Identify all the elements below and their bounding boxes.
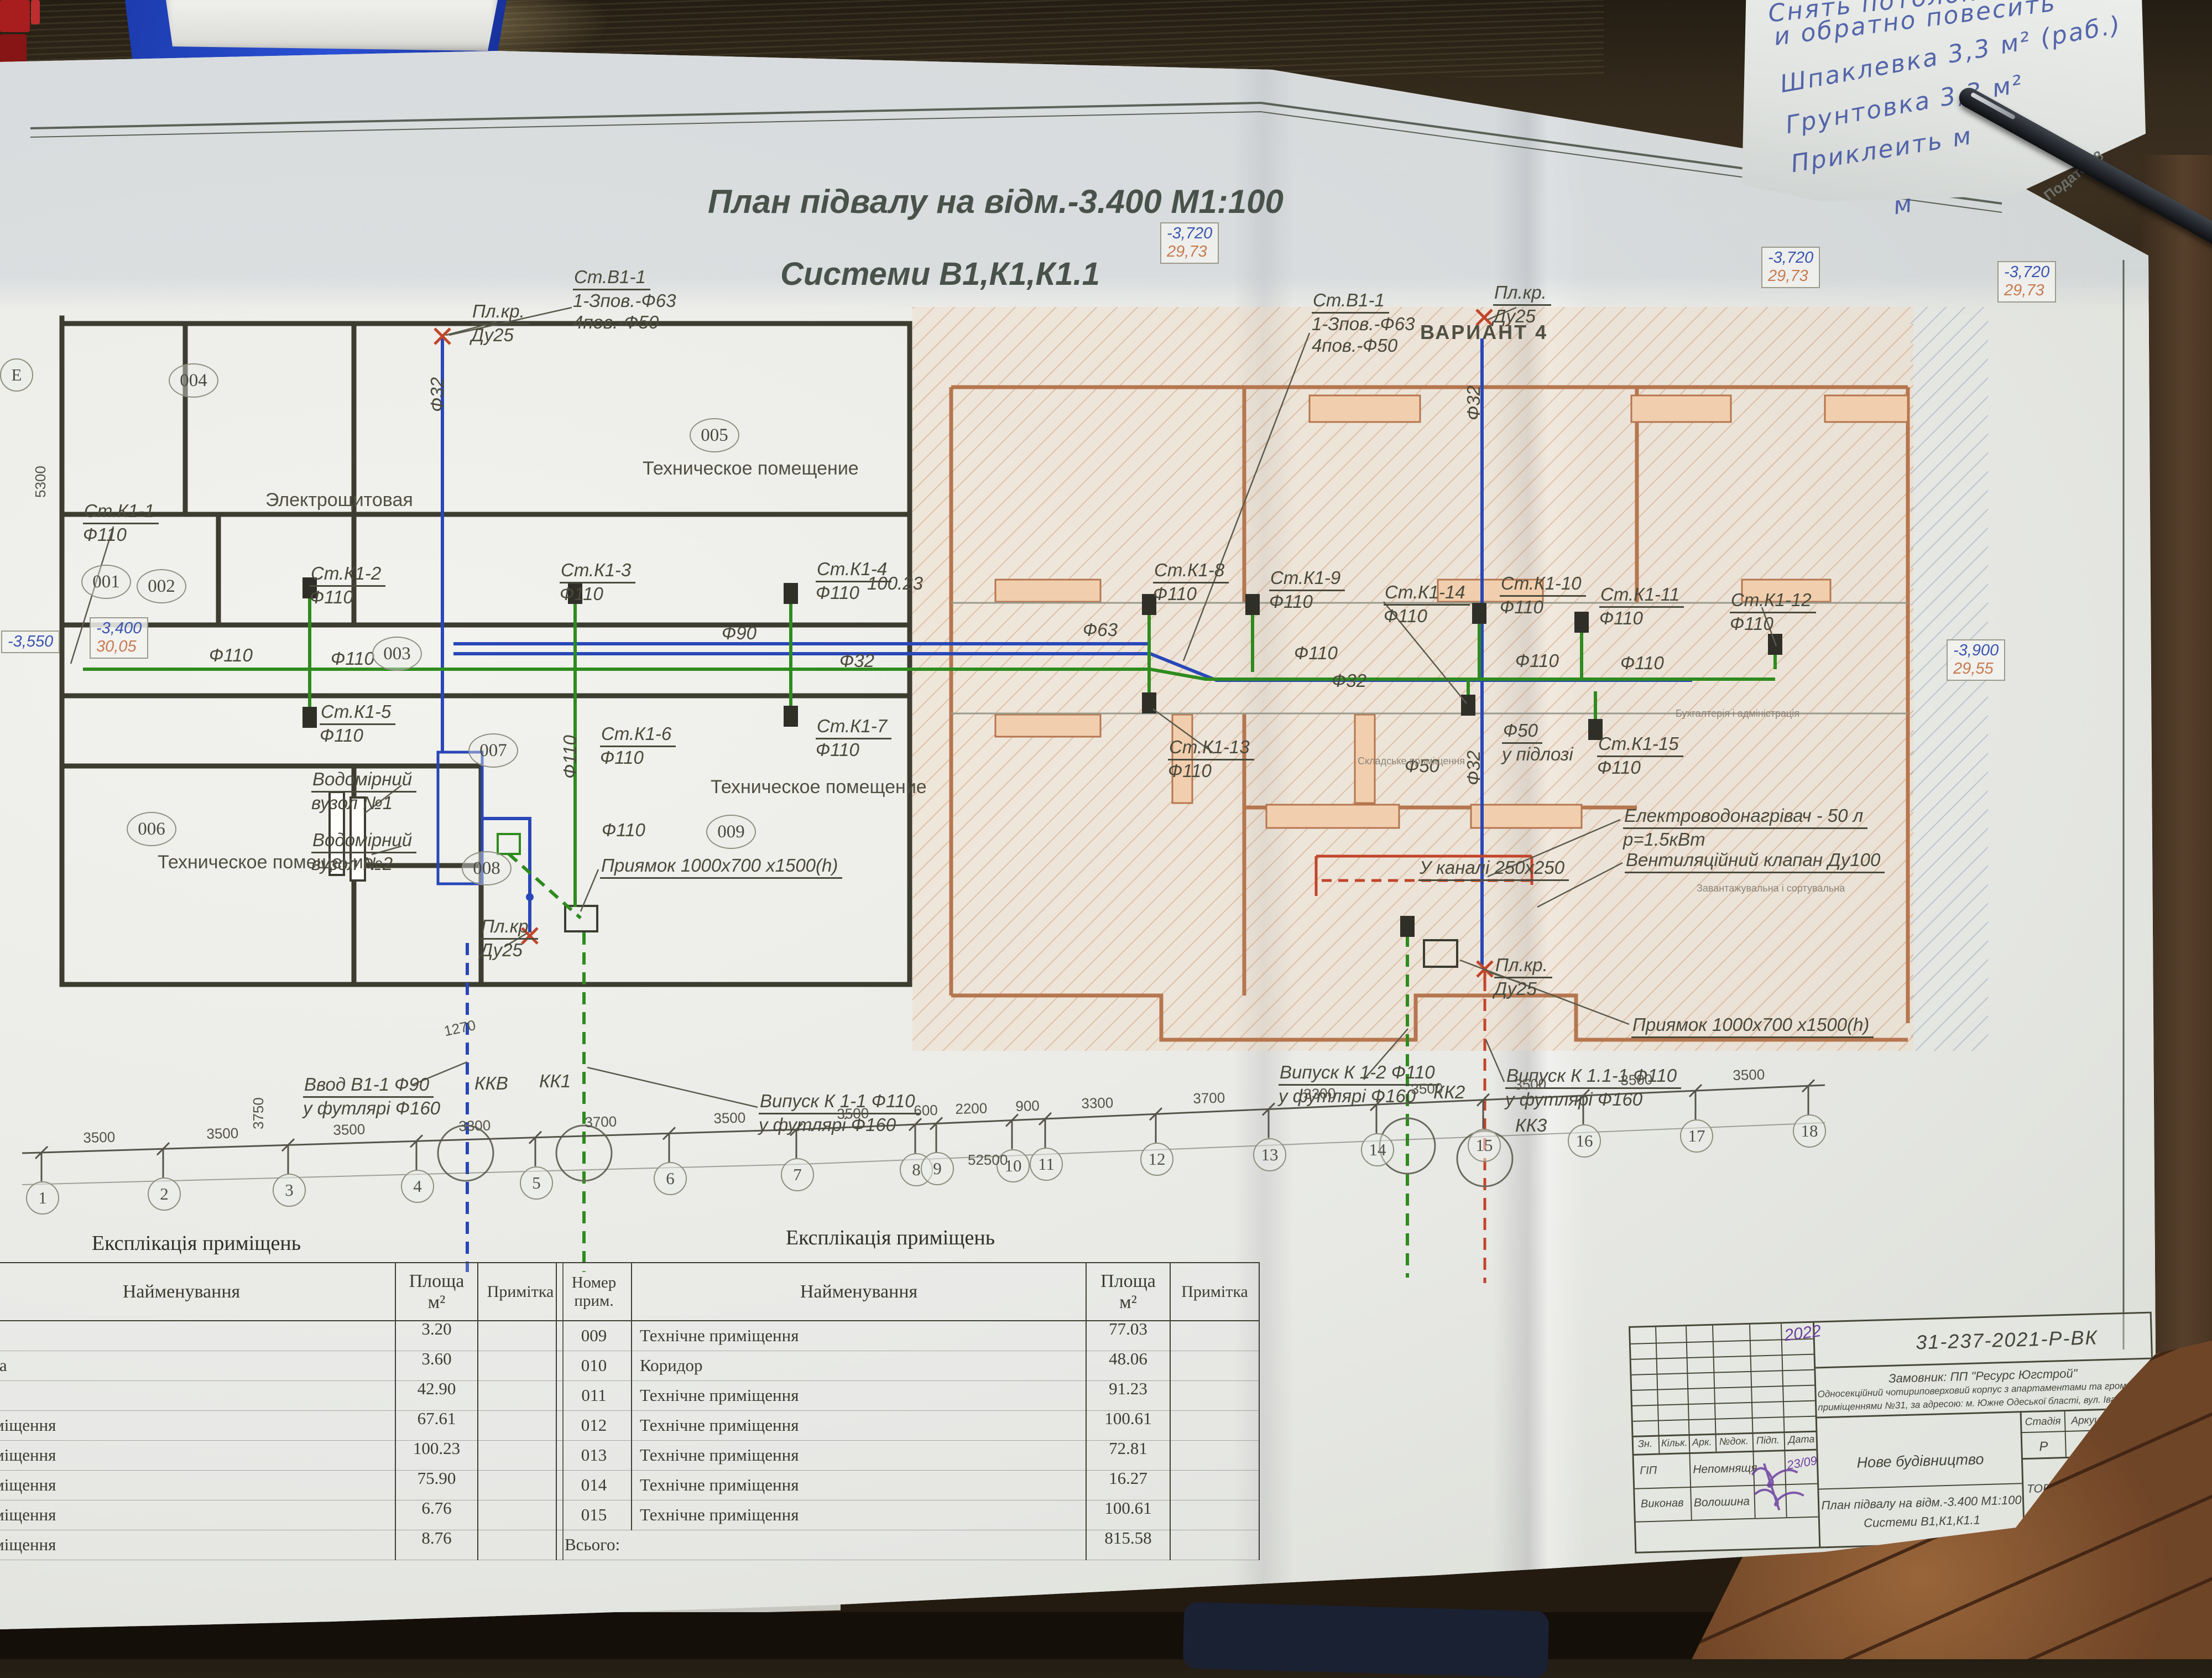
table-row: това3.60 xyxy=(0,1351,563,1380)
room-name-small: Завантажувальна і сортувальна xyxy=(1697,883,1845,894)
axis-circle: 5 xyxy=(520,1166,553,1200)
room-name: Техническое помещение xyxy=(158,852,374,873)
table-total-row: Всього:815.58 xyxy=(556,1530,1259,1560)
plan-label: Ф32 xyxy=(839,650,874,672)
plan-label: Приямок 1000х700 х1500(h) xyxy=(1631,1014,1874,1038)
dimension-value: 5300 xyxy=(32,466,49,498)
plan-label: Ст.К1-8Ф110 xyxy=(1153,560,1229,605)
plan-label: Ст.К1-1Ф110 xyxy=(83,501,159,546)
dimension-value: 3500 xyxy=(206,1124,239,1143)
axis-circle: 7 xyxy=(781,1158,814,1191)
axis-circle: 1 xyxy=(26,1181,59,1215)
plan-label: Ст.К1-3Ф110 xyxy=(560,560,635,605)
drawing-title-line1: План підвалу на відм.-3.400 М1:100 xyxy=(708,183,1172,221)
plan-label: Ф110 xyxy=(1620,653,1664,674)
plan-label: Ст.К1-9Ф110 xyxy=(1269,567,1345,613)
dimension-value: 3500 xyxy=(83,1128,116,1147)
plan-label: Ф110 xyxy=(560,735,581,779)
plan-label: Ст.К1-6Ф110 xyxy=(600,723,676,769)
plan-label: КК3 xyxy=(1515,1115,1547,1137)
plan-label: Ст.К1-10Ф110 xyxy=(1500,573,1586,618)
plan-label: Ст.В1-11-Зпов.-Ф634пов.-Ф50 xyxy=(573,267,676,333)
plan-label: Електроводонагрівач - 50 лp=1.5кВт xyxy=(1623,805,1867,851)
dimension-value: 3700 xyxy=(585,1113,617,1131)
room-name-small: Бухгалтерія і адміністрація xyxy=(1676,708,1799,720)
axis-circle: 2 xyxy=(148,1177,181,1211)
axis-circle: 6 xyxy=(654,1162,687,1195)
plan-label: Ф63 xyxy=(1083,619,1118,641)
plan-label: Ф110 xyxy=(209,645,253,666)
elevation-mark: -3,40030,05 xyxy=(90,617,148,659)
dimension-value: 3500 xyxy=(1733,1066,1765,1085)
plan-label: Вентиляційний клапан Ду100 xyxy=(1625,850,1885,873)
room-number-circle: 009 xyxy=(706,815,756,849)
plan-label: Пл.кр.Ду25 xyxy=(480,916,538,961)
dimension-value: 2200 xyxy=(955,1100,988,1118)
table-row: риміщення100.23 xyxy=(0,1440,563,1470)
plan-label: Ф32 xyxy=(1332,670,1366,692)
dimension-value: 3500 xyxy=(1620,1071,1653,1089)
table-row: 3.20 xyxy=(0,1321,563,1351)
dimension-value: 3750 xyxy=(250,1097,267,1129)
elevation-mark: -3,550 xyxy=(1,630,60,653)
plan-label: Ф110 xyxy=(331,648,374,670)
axis-circle: E xyxy=(0,358,33,392)
plan-label: Ст.К1-12Ф110 xyxy=(1730,590,1816,635)
table-row: риміщення6.76 xyxy=(0,1500,563,1530)
dark-object-under-desk xyxy=(1183,1602,1550,1677)
right-table-title: Експлікація приміщень xyxy=(735,1226,1045,1250)
plan-label: Ф50у підлозі xyxy=(1502,720,1573,765)
tb-subtitle1: План підвалу на відм.-3.400 М1:100 xyxy=(1820,1493,2023,1513)
room-name: Техническое помещение xyxy=(711,777,927,798)
plan-label: Ст.К1-15Ф110 xyxy=(1597,733,1683,779)
plan-label: Ф90 xyxy=(722,623,757,644)
axis-circle: 17 xyxy=(1680,1119,1713,1153)
table-row: риміщення75.90 xyxy=(0,1470,563,1500)
axis-circle: 11 xyxy=(1030,1148,1063,1181)
dimension-value: 3500 xyxy=(1411,1080,1443,1098)
elevation-mark: -3,90029,55 xyxy=(1947,639,2005,681)
axis-circle: 16 xyxy=(1568,1124,1601,1158)
plan-label: Ст.К1-13Ф110 xyxy=(1168,737,1254,782)
room-name: Техническое помещение xyxy=(643,458,859,480)
room-number-circle: 007 xyxy=(468,733,518,768)
elevation-mark: -3,72029,73 xyxy=(1761,247,1820,288)
author-name: Волошина xyxy=(1694,1495,1750,1510)
handwritten-year: 2022 xyxy=(1783,1322,1823,1346)
plan-label: Ст.К1-5Ф110 xyxy=(320,701,395,747)
plan-label: Ст.К1-11Ф110 xyxy=(1599,584,1684,629)
room-number-circle: 001 xyxy=(81,565,131,599)
axis-circle: 4 xyxy=(401,1170,434,1203)
document-number: 31-237-2021-Р-ВК xyxy=(1874,1325,2140,1355)
plan-label: Водомірнийвузол №1 xyxy=(311,769,416,814)
plan-label: Пл.кр.Ду25 xyxy=(471,301,529,346)
dimension-value: 3300 xyxy=(1303,1085,1336,1103)
axis-circle: 18 xyxy=(1793,1114,1826,1148)
plan-label: Ввод В1-1 Ф90у футлярі Ф160 xyxy=(303,1074,440,1119)
total-dimension: 52500 xyxy=(968,1151,1008,1169)
plan-label: КК1 xyxy=(539,1071,571,1092)
plan-label: Ст.К1-7Ф110 xyxy=(816,716,891,761)
dimension-value: 3300 xyxy=(1081,1095,1114,1113)
elevation-mark: -3,72029,73 xyxy=(1997,261,2056,303)
dimension-value: 3500 xyxy=(1514,1076,1547,1094)
axis-circle: 12 xyxy=(1140,1143,1173,1176)
table-row: риміщення67.61 xyxy=(0,1410,563,1440)
room-number-circle: 006 xyxy=(127,812,176,846)
table-row: 42.90 xyxy=(0,1380,563,1410)
signature-scribble xyxy=(1747,1451,1809,1514)
plan-label: Ф32 xyxy=(427,377,448,412)
axis-circle: 15 xyxy=(1468,1129,1501,1162)
red-book-spine xyxy=(0,0,30,32)
dimension-value: 3700 xyxy=(1193,1090,1225,1108)
axis-circle: 14 xyxy=(1361,1133,1394,1166)
axis-circle: 13 xyxy=(1253,1138,1286,1171)
plan-label: Ст.К1-14Ф110 xyxy=(1384,582,1470,627)
room-number-circle: 004 xyxy=(169,363,218,398)
paper-stack-on-binder xyxy=(166,0,498,55)
explication-table-left: Найменування Площам² Примітка 3.20това3.… xyxy=(0,1262,564,1560)
red-book-spine xyxy=(31,0,40,24)
room-name-small: Складське приміщення xyxy=(1358,755,1465,767)
room-number-circle: 002 xyxy=(137,569,186,603)
dimension-value: 3500 xyxy=(837,1105,869,1123)
plan-label: ККВ xyxy=(474,1073,508,1095)
plan-label: Ф110 xyxy=(1515,650,1559,672)
room-name: Электрощитовая xyxy=(265,489,413,511)
plan-label: Ф110 xyxy=(1294,643,1338,664)
dimension-value: 3500 xyxy=(333,1121,366,1139)
tb-subtitle2: Системи В1,К1,К1.1 xyxy=(1821,1512,2023,1531)
explication-table-right: Номерприм. Найменування Площам² Примітка… xyxy=(556,1262,1260,1560)
plan-label: Ф32 xyxy=(1463,751,1485,785)
construction-status: Нове будівництво xyxy=(1819,1450,2022,1472)
red-book-spine xyxy=(0,34,27,65)
axis-circle: 3 xyxy=(273,1174,306,1207)
stage-value: Р xyxy=(2022,1439,2065,1455)
elevation-mark: -3,72029,73 xyxy=(1160,222,1219,264)
plan-label: Ст.В1-11-Зпов.-Ф634пов.-Ф50 xyxy=(1312,290,1415,357)
plan-label: Пл.кр.Ду25 xyxy=(1494,955,1552,1000)
drawing-title-line2: Системи В1,К1,К1.1 xyxy=(708,256,1172,293)
photo-of-blueprint-on-desk: { "sheet": { "title_line1": "План підвал… xyxy=(0,0,2212,1659)
plan-label: Приямок 1000х700 х1500(h) xyxy=(600,855,842,879)
dimension-value: 900 xyxy=(1015,1097,1040,1115)
plan-label: 100.23 xyxy=(867,573,923,595)
plan-label: Ст.К1-2Ф110 xyxy=(310,563,385,608)
dimension-value: 3300 xyxy=(458,1117,491,1135)
table-row: риміщення8.76 xyxy=(0,1530,563,1560)
room-number-circle: 005 xyxy=(690,418,739,452)
dimension-value: 600 xyxy=(914,1102,938,1119)
plan-label: Пл.кр.Ду25 xyxy=(1493,282,1551,327)
dimension-value: 3500 xyxy=(713,1109,746,1127)
room-number-circle: 008 xyxy=(462,851,512,885)
left-table-title: Експлікація приміщень xyxy=(66,1231,326,1255)
blueprint-sheet: План підвалу на відм.-3.400 М1:100 Систе… xyxy=(0,0,2212,1659)
plan-label: У каналі 250х250 xyxy=(1418,857,1569,881)
plan-label: Ф110 xyxy=(602,820,645,841)
handwritten-note-line: м xyxy=(1891,189,1916,220)
plan-label: Ф32 xyxy=(1463,385,1485,420)
room-number-circle: 003 xyxy=(372,637,422,671)
